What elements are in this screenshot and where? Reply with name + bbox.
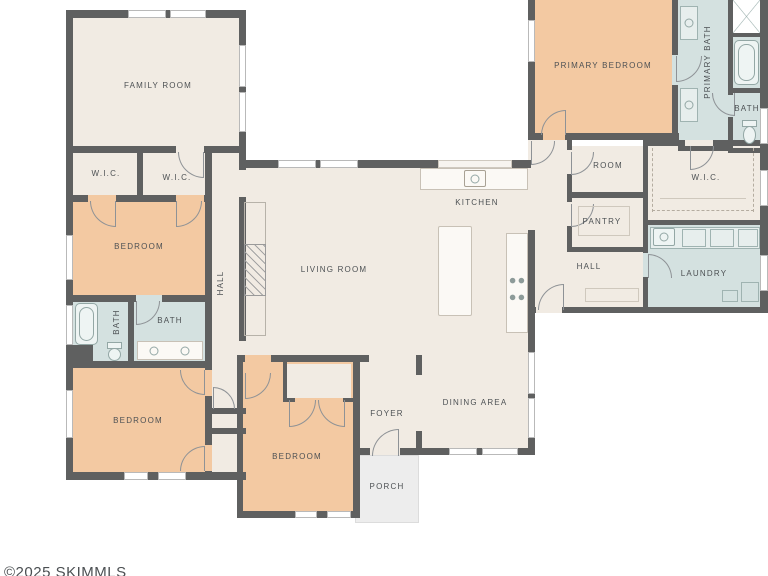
room-label-family-room: FAMILY ROOM	[124, 82, 192, 90]
wall	[66, 472, 246, 480]
appliance	[741, 282, 759, 302]
wall	[528, 307, 768, 313]
window	[170, 10, 206, 18]
window	[760, 170, 768, 206]
room-label-bath-right: BATH	[734, 105, 760, 113]
door-gap	[205, 370, 212, 396]
room-label-room-right: ROOM	[593, 162, 623, 170]
room-label-pantry: PANTRY	[583, 218, 622, 226]
floor-plan-canvas: FAMILY ROOM W.I.C. W.I.C. BEDROOM BATH B…	[0, 0, 768, 576]
sink-icon	[172, 343, 198, 358]
wall-chase	[73, 345, 93, 362]
laundry-sink-icon	[653, 228, 675, 246]
wall	[728, 0, 733, 153]
room-label-wic-left-b: W.I.C.	[163, 174, 192, 182]
wall	[137, 146, 143, 202]
room-label-hall-left: HALL	[217, 271, 225, 296]
window	[528, 398, 535, 438]
wall	[239, 10, 246, 170]
wall	[567, 247, 643, 252]
floor-hall-left	[212, 153, 239, 473]
room-label-laundry: LAUNDRY	[681, 270, 728, 278]
room-label-foyer: FOYER	[370, 410, 404, 418]
appliance	[722, 290, 738, 302]
bathtub-icon	[75, 303, 98, 345]
floor-opening-hall-top	[239, 170, 246, 197]
window	[239, 45, 246, 87]
window	[158, 472, 186, 480]
wall	[237, 355, 243, 518]
window	[239, 92, 246, 132]
window	[760, 108, 768, 144]
shower-icon	[733, 0, 760, 33]
stairs-hatch	[244, 244, 266, 296]
window	[66, 305, 73, 345]
wall	[733, 33, 762, 37]
kitchen-sink-icon	[464, 170, 486, 187]
wall	[128, 300, 134, 368]
wall	[416, 431, 422, 455]
room-label-wic-left-a: W.I.C.	[92, 170, 121, 178]
window	[760, 255, 768, 291]
washer-icon	[682, 229, 706, 247]
bathtub-icon	[734, 40, 759, 85]
wall	[66, 361, 212, 368]
wall	[66, 146, 240, 153]
toilet-icon	[741, 120, 758, 144]
window	[278, 160, 316, 168]
closet-rod	[652, 148, 653, 212]
window	[295, 511, 317, 518]
kitchen-island	[438, 226, 472, 316]
closet-rod	[652, 210, 754, 211]
wall	[353, 355, 360, 518]
wall	[416, 355, 422, 375]
appliance	[738, 229, 758, 247]
wall	[283, 361, 287, 402]
wall	[567, 192, 643, 198]
room-label-wic-right: W.I.C.	[692, 174, 721, 182]
room-label-primary-bedroom: PRIMARY BEDROOM	[554, 62, 652, 70]
toilet-icon	[106, 342, 123, 361]
window-kitchen	[438, 160, 512, 168]
closet-rod	[753, 148, 754, 212]
window	[66, 235, 73, 280]
floor-mat	[585, 288, 639, 302]
room-label-hall-right: HALL	[577, 263, 602, 271]
dryer-icon	[710, 229, 734, 247]
room-label-bedroom-upper-left: BEDROOM	[114, 243, 164, 251]
wall	[643, 220, 760, 225]
window	[327, 511, 351, 518]
room-label-bedroom-lower-left: BEDROOM	[113, 417, 163, 425]
window	[320, 160, 358, 168]
window	[449, 448, 477, 455]
vanity-sink-icon	[680, 88, 698, 122]
window	[124, 472, 148, 480]
window	[528, 352, 535, 394]
sink-icon	[141, 343, 167, 358]
room-label-living-room: LIVING ROOM	[301, 266, 368, 274]
floor-opening-foyer	[369, 355, 416, 368]
room-label-porch: PORCH	[370, 483, 405, 491]
room-label-primary-bath: PRIMARY BATH	[704, 25, 712, 99]
window	[128, 10, 166, 18]
window	[482, 448, 518, 455]
room-label-kitchen: KITCHEN	[455, 199, 499, 207]
room-label-bath-left-a: BATH	[113, 309, 121, 335]
door-gap	[205, 445, 212, 471]
door-gap	[245, 355, 271, 362]
room-label-bedroom-center: BEDROOM	[272, 453, 322, 461]
room-label-dining-area: DINING AREA	[443, 399, 508, 407]
window	[66, 390, 73, 438]
watermark: ©2025 SKIMMLS	[4, 564, 127, 576]
stove-burners-icon	[507, 274, 527, 304]
window	[528, 20, 535, 62]
room-label-bath-left-b: BATH	[157, 317, 183, 325]
vanity-sink-icon	[680, 6, 698, 40]
floor-closet-center-bedroom	[287, 364, 351, 398]
wall	[728, 148, 766, 153]
closet-shelf	[660, 198, 746, 199]
